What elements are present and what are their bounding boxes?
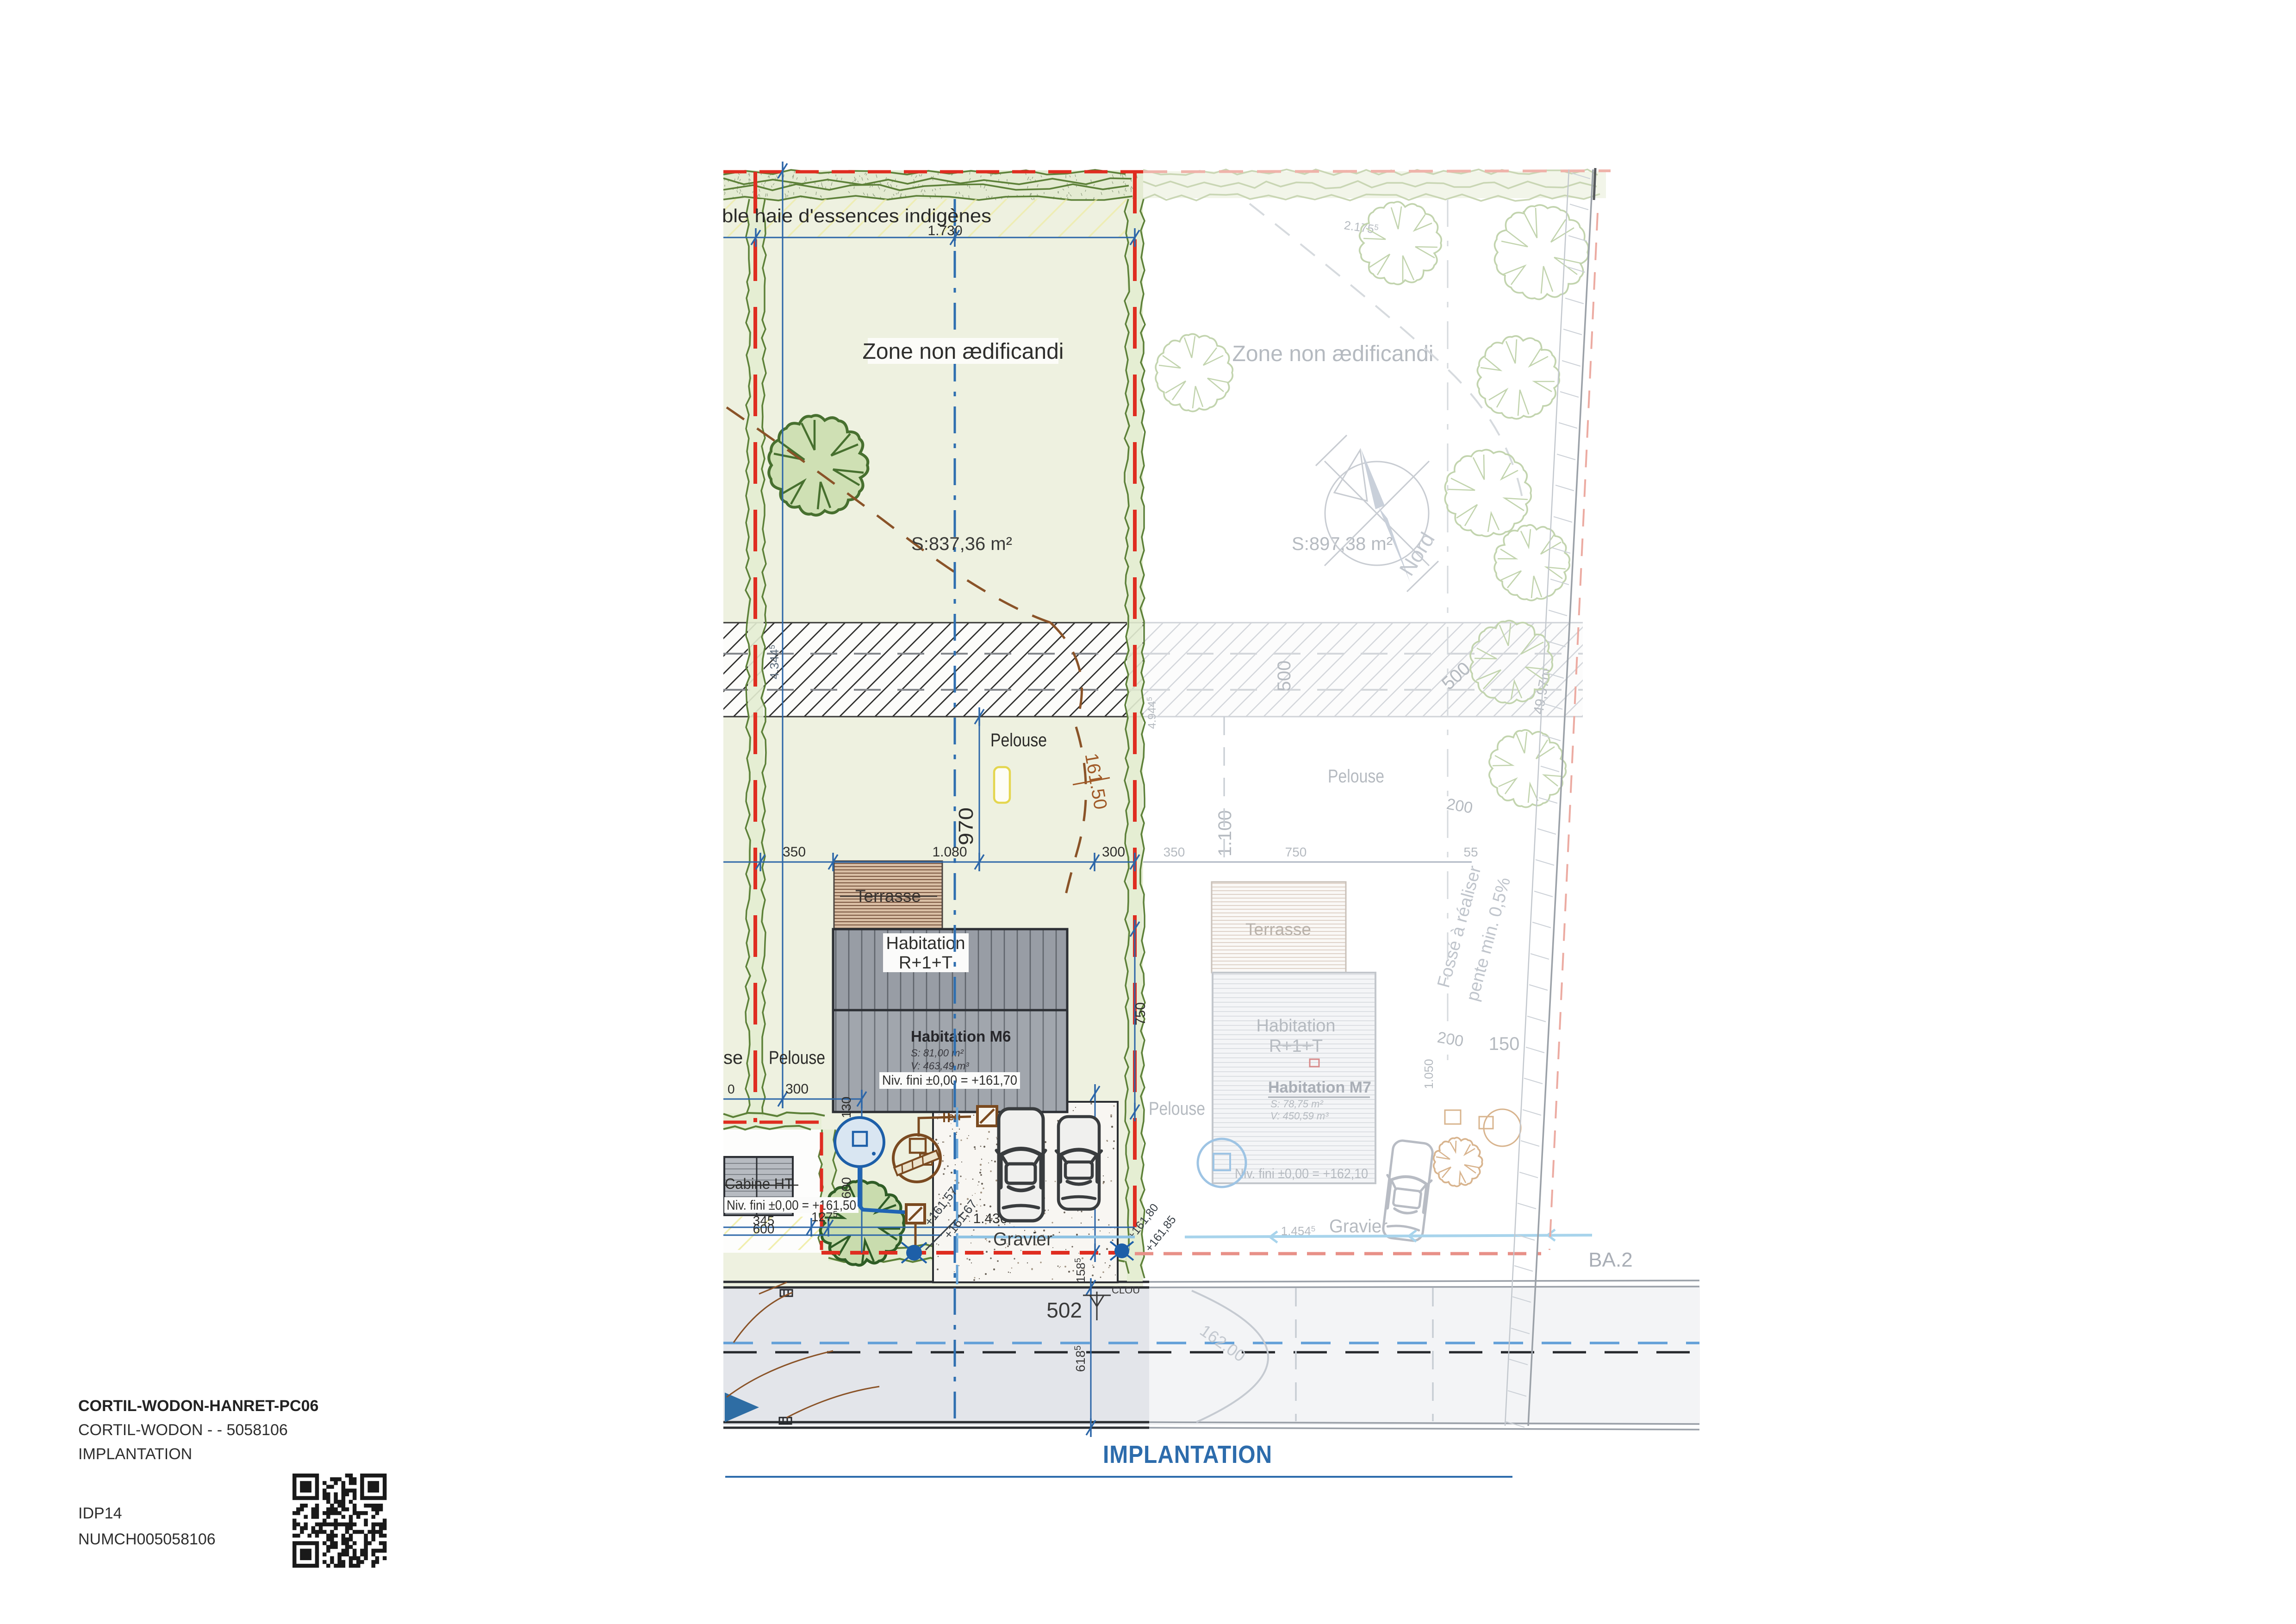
svg-text:750: 750 (1285, 845, 1307, 859)
svg-text:ble haie d'essences indigènes: ble haie d'essences indigènes (722, 205, 991, 226)
svg-text:Zone non ædificandi: Zone non ædificandi (863, 339, 1064, 364)
svg-text:CORTIL-WODON-HANRET-PC06: CORTIL-WODON-HANRET-PC06 (78, 1397, 318, 1415)
svg-text:750: 750 (1133, 1002, 1148, 1025)
svg-text:S: 78,75 m²: S: 78,75 m² (1270, 1098, 1323, 1110)
svg-text:V: 463,49 m³: V: 463,49 m³ (911, 1060, 969, 1072)
svg-text:130: 130 (839, 1097, 853, 1118)
svg-text:CORTIL-WODON - - 5058106: CORTIL-WODON - - 5058106 (78, 1421, 288, 1439)
svg-text:Niv. fini ±0,00 = +161,70: Niv. fini ±0,00 = +161,70 (882, 1073, 1017, 1088)
svg-text:1.100: 1.100 (1215, 810, 1235, 856)
svg-text:Pelouse: Pelouse (769, 1048, 825, 1068)
svg-text:350: 350 (1164, 845, 1185, 859)
svg-text:Habitation: Habitation (886, 934, 965, 953)
svg-text:eu: eu (948, 1111, 961, 1123)
svg-text:Gravier: Gravier (1329, 1216, 1388, 1237)
svg-text:600: 600 (839, 1177, 853, 1199)
svg-text:R+1+T: R+1+T (899, 953, 952, 973)
svg-text:Niv. fini ±0,00 = +162,10: Niv. fini ±0,00 = +162,10 (1235, 1166, 1368, 1181)
svg-text:Cabine HT: Cabine HT (725, 1175, 793, 1192)
svg-text:Habitation M6: Habitation M6 (911, 1028, 1011, 1045)
svg-text:BA.2: BA.2 (1588, 1249, 1632, 1271)
svg-text:Habitation: Habitation (1256, 1016, 1335, 1036)
svg-text:R+1+T: R+1+T (1269, 1037, 1323, 1056)
svg-text:1.050: 1.050 (1422, 1059, 1436, 1089)
svg-text:350: 350 (783, 844, 806, 860)
svg-text:Pelouse: Pelouse (1328, 766, 1384, 787)
svg-text:IDP14: IDP14 (78, 1505, 122, 1522)
svg-text:se: se (723, 1048, 743, 1068)
svg-text:Habitation M7: Habitation M7 (1268, 1079, 1371, 1096)
svg-text:Pelouse: Pelouse (990, 730, 1047, 750)
svg-text:Pelouse: Pelouse (1149, 1099, 1205, 1119)
svg-text:S:837,36 m²: S:837,36 m² (911, 534, 1012, 554)
svg-text:NUMCH005058106: NUMCH005058106 (78, 1530, 216, 1548)
svg-text:4.3445: 4.3445 (767, 645, 781, 680)
svg-text:500: 500 (1274, 661, 1294, 692)
svg-text:502: 502 (1046, 1298, 1082, 1322)
svg-text:4.9445: 4.9445 (1146, 697, 1158, 729)
svg-text:CLOU: CLOU (1112, 1284, 1140, 1296)
svg-text:300: 300 (785, 1081, 809, 1097)
svg-text:600: 600 (753, 1222, 775, 1236)
svg-text:970: 970 (955, 807, 977, 845)
svg-text:Terrasse: Terrasse (1245, 920, 1311, 939)
svg-text:IMPLANTATION: IMPLANTATION (1103, 1441, 1272, 1468)
svg-text:55: 55 (1463, 845, 1478, 859)
svg-text:150: 150 (1489, 1034, 1520, 1054)
svg-text:0: 0 (728, 1082, 735, 1096)
svg-text:V: 450,59 m³: V: 450,59 m³ (1270, 1110, 1329, 1122)
svg-text:Zone non ædificandi: Zone non ædificandi (1232, 342, 1434, 366)
svg-text:300: 300 (1102, 844, 1125, 860)
svg-text:Gravier: Gravier (993, 1229, 1052, 1249)
svg-text:IMPLANTATION: IMPLANTATION (78, 1445, 192, 1463)
svg-text:1.080: 1.080 (932, 844, 967, 860)
